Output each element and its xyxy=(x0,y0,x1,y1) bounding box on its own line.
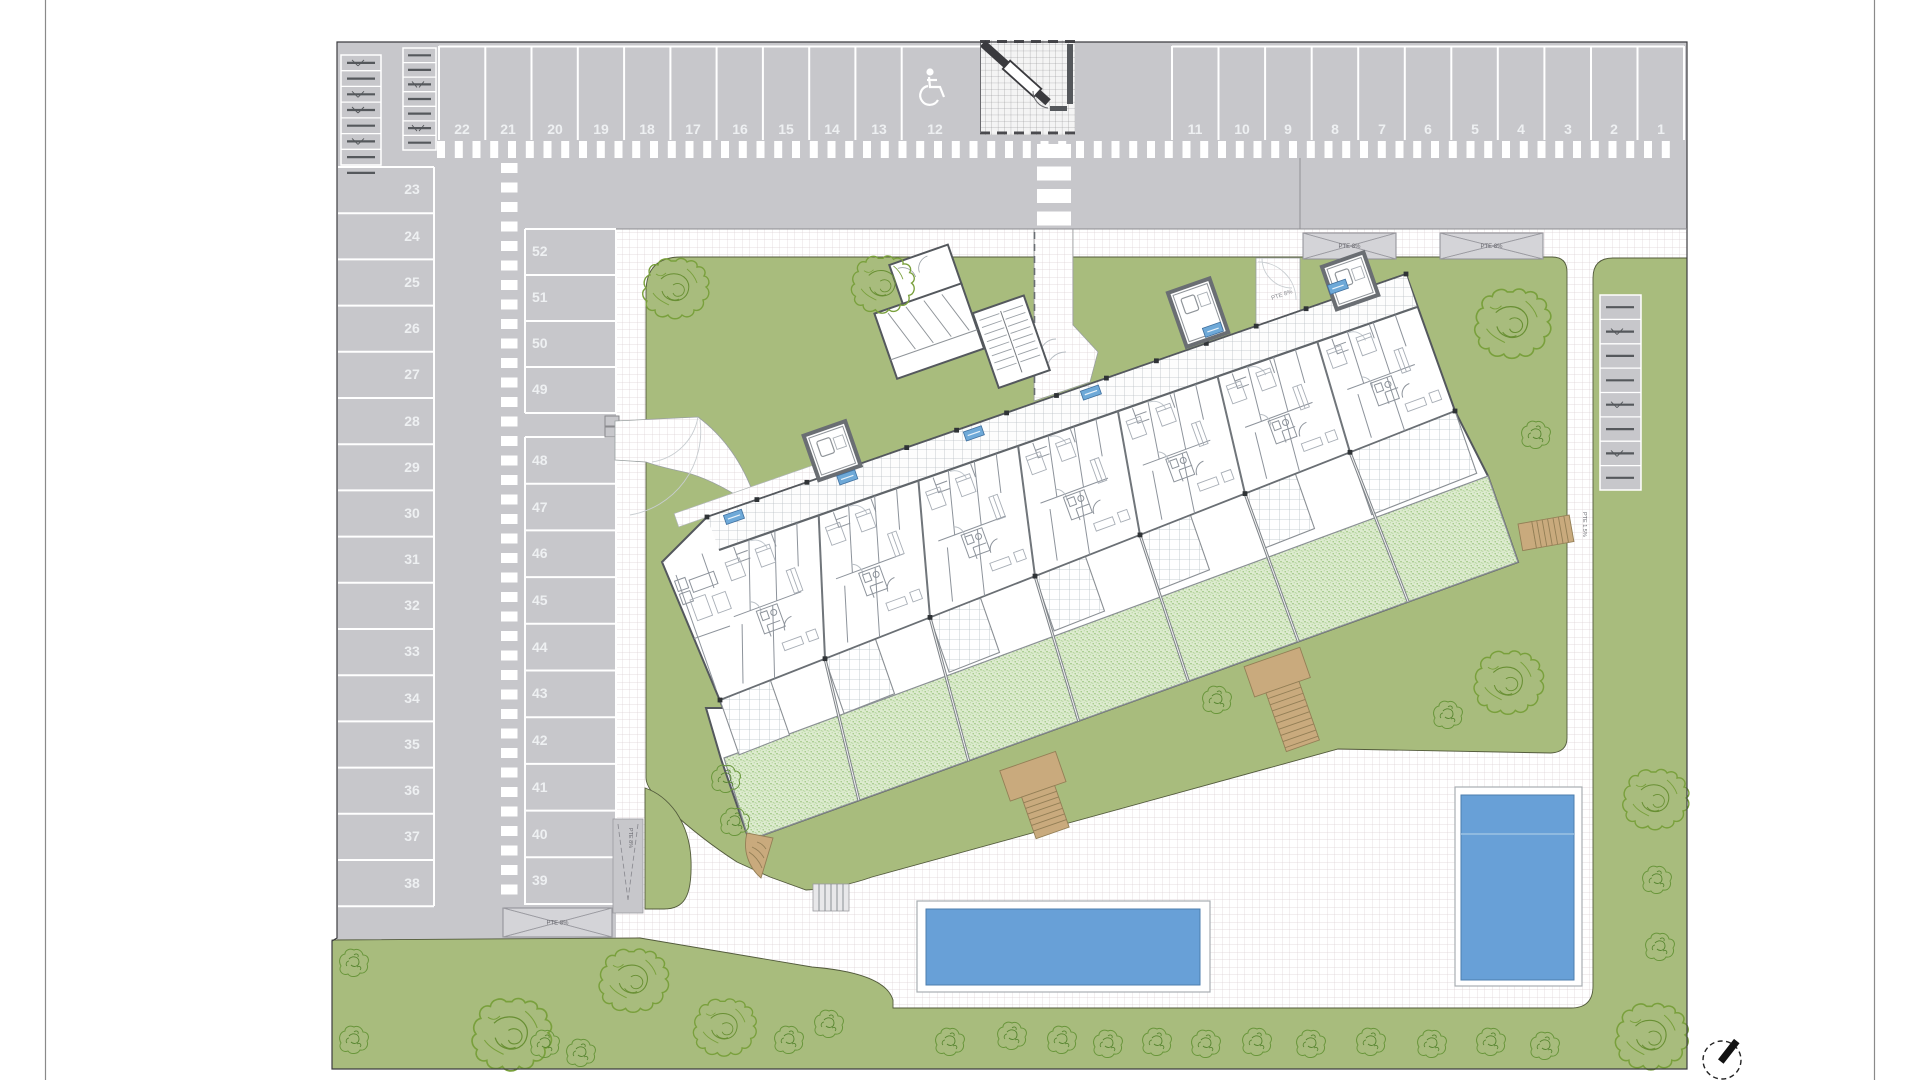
svg-text:PTE 8%: PTE 8% xyxy=(546,921,569,927)
svg-text:37: 37 xyxy=(404,828,420,844)
svg-text:20: 20 xyxy=(547,121,563,137)
svg-text:8: 8 xyxy=(1331,121,1339,137)
svg-text:24: 24 xyxy=(404,228,420,244)
svg-text:PTE 8%: PTE 8% xyxy=(627,828,633,848)
svg-text:48: 48 xyxy=(532,452,548,468)
svg-text:10: 10 xyxy=(1234,121,1250,137)
svg-text:18: 18 xyxy=(639,121,655,137)
svg-text:23: 23 xyxy=(404,181,420,197)
svg-text:31: 31 xyxy=(404,551,420,567)
svg-text:25: 25 xyxy=(404,274,420,290)
svg-text:3: 3 xyxy=(1564,121,1572,137)
svg-text:12: 12 xyxy=(927,121,943,137)
svg-text:22: 22 xyxy=(454,121,470,137)
svg-text:40: 40 xyxy=(532,826,548,842)
svg-text:30: 30 xyxy=(404,505,420,521)
svg-text:29: 29 xyxy=(404,459,420,475)
svg-text:5: 5 xyxy=(1471,121,1479,137)
svg-text:11: 11 xyxy=(1188,121,1203,137)
svg-text:49: 49 xyxy=(532,381,548,397)
svg-text:33: 33 xyxy=(404,643,420,659)
svg-text:32: 32 xyxy=(404,597,420,613)
svg-text:19: 19 xyxy=(593,121,609,137)
svg-text:27: 27 xyxy=(404,366,420,382)
svg-text:36: 36 xyxy=(404,782,420,798)
svg-text:9: 9 xyxy=(1284,121,1292,137)
svg-text:4: 4 xyxy=(1517,121,1525,137)
svg-text:45: 45 xyxy=(532,592,548,608)
svg-text:6: 6 xyxy=(1424,121,1432,137)
svg-text:1: 1 xyxy=(1657,121,1665,137)
svg-text:38: 38 xyxy=(404,875,420,891)
svg-text:PTE 8%: PTE 8% xyxy=(1338,244,1361,250)
svg-text:13: 13 xyxy=(871,121,887,137)
svg-text:50: 50 xyxy=(532,335,548,351)
svg-text:7: 7 xyxy=(1378,121,1386,137)
svg-text:15: 15 xyxy=(778,121,794,137)
svg-text:21: 21 xyxy=(500,121,516,137)
svg-text:PTE 8%: PTE 8% xyxy=(1480,244,1503,250)
svg-text:17: 17 xyxy=(685,121,701,137)
svg-text:16: 16 xyxy=(732,121,748,137)
svg-text:2: 2 xyxy=(1610,121,1618,137)
svg-text:39: 39 xyxy=(532,872,548,888)
svg-text:46: 46 xyxy=(532,545,548,561)
svg-text:26: 26 xyxy=(404,320,420,336)
svg-text:47: 47 xyxy=(532,499,548,515)
svg-text:35: 35 xyxy=(404,736,420,752)
svg-text:34: 34 xyxy=(404,690,420,706)
svg-text:44: 44 xyxy=(532,639,548,655)
svg-text:14: 14 xyxy=(824,121,840,137)
svg-text:51: 51 xyxy=(532,289,548,305)
svg-text:28: 28 xyxy=(404,413,420,429)
svg-text:PTE 1.5%: PTE 1.5% xyxy=(1581,512,1587,537)
svg-text:41: 41 xyxy=(532,779,548,795)
svg-text:52: 52 xyxy=(532,243,548,259)
svg-text:43: 43 xyxy=(532,685,548,701)
svg-text:42: 42 xyxy=(532,732,548,748)
